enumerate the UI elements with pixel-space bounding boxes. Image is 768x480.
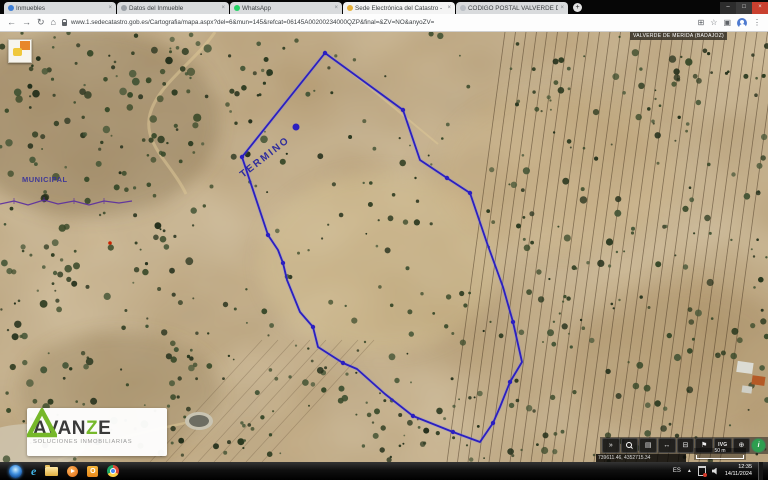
avanze-watermark: AVANZE SOLUCIONES INMOBILIARIAS [27, 408, 167, 456]
browser-navbar: ← → ↻ ⌂ www.1.sedecatastro.gob.es/Cartog… [0, 14, 768, 32]
page-gray-favicon-icon [460, 5, 466, 11]
tab-close-icon[interactable]: × [221, 5, 225, 11]
browser-tab[interactable]: Sede Electrónica del Catastro -× [343, 2, 455, 14]
tab-title: Datos del Inmueble [129, 5, 219, 12]
browser-tabbar: Inmuebles×Datos del Inmueble×WhatsApp×Se… [0, 0, 768, 14]
map-tool-zoom-icon[interactable] [621, 438, 639, 453]
browser-tab[interactable]: Datos del Inmueble× [117, 2, 229, 14]
magnifier-icon [625, 442, 633, 450]
tab-close-icon[interactable]: × [447, 5, 451, 11]
close-button[interactable]: × [752, 2, 768, 14]
tab-list: Inmuebles×Datos del Inmueble×WhatsApp×Se… [0, 0, 569, 14]
whatsapp-green-favicon-icon [234, 5, 240, 11]
navbar-actions: ⊞ ☆ ▣ ⋮ [698, 18, 761, 28]
window-controls: – □ × [720, 2, 768, 14]
layers-widget-yellow [13, 48, 22, 56]
forward-icon[interactable]: → [22, 18, 31, 27]
clock-time: 12:35 [725, 464, 752, 471]
action-center-icon[interactable] [698, 466, 706, 476]
tab-title: WhatsApp [242, 5, 332, 12]
clock-date: 14/11/2024 [725, 471, 752, 478]
coordinates-readout: 739611.46, 4352715.34 [596, 454, 686, 462]
map-tool-info-icon[interactable]: i [751, 438, 766, 453]
clock[interactable]: 12:35 14/11/2024 [725, 464, 752, 478]
avanze-triangle-logo [27, 408, 57, 438]
speaker-icon[interactable] [712, 468, 719, 475]
tab-title: Sede Electrónica del Catastro - [355, 5, 445, 12]
info-label: i [758, 442, 760, 449]
tray-expand-icon[interactable]: ▲ [687, 468, 692, 474]
map-tool-chevron-icon[interactable]: » [602, 438, 620, 453]
chrome-icon[interactable] [107, 465, 119, 477]
home-icon[interactable]: ⌂ [51, 18, 56, 27]
start-button[interactable] [9, 465, 22, 478]
tab-title: Inmuebles [16, 5, 106, 12]
tab-title: CODIGO POSTAL VALVERDE DE [468, 5, 558, 12]
map-tool-layers-icon[interactable]: ▤ [639, 438, 657, 453]
map-tool-measure-icon[interactable]: ↔ [658, 438, 676, 453]
show-desktop-button[interactable] [758, 462, 763, 480]
pond [185, 412, 213, 430]
url-bar[interactable]: www.1.sedecatastro.gob.es/Cartografia/ma… [62, 19, 692, 26]
document-gray-favicon-icon [121, 5, 127, 11]
reload-icon[interactable]: ↻ [37, 18, 45, 27]
url-text: www.1.sedecatastro.gob.es/Cartografia/ma… [71, 19, 434, 26]
minimize-button[interactable]: – [720, 2, 736, 14]
back-icon[interactable]: ← [7, 18, 16, 27]
screen: Inmuebles×Datos del Inmueble×WhatsApp×Se… [0, 0, 768, 480]
tab-close-icon[interactable]: × [334, 5, 338, 11]
tab-close-icon[interactable]: × [560, 5, 564, 11]
taskbar: ES ▲ 12:35 14/11/2024 [0, 462, 768, 480]
browser-tab[interactable]: Inmuebles× [4, 2, 116, 14]
scale-bar: 50 m [694, 448, 746, 460]
file-explorer-icon[interactable] [45, 467, 58, 476]
menu-kebab-icon[interactable]: ⋮ [753, 19, 761, 27]
system-tray: ES ▲ 12:35 14/11/2024 [673, 462, 768, 480]
map-tool-print-icon[interactable]: ⊟ [677, 438, 695, 453]
tab-close-icon[interactable]: × [108, 5, 112, 11]
aerial-imagery: TERMINO MUNICIPAL [0, 32, 768, 462]
red-marker [108, 241, 112, 245]
municipal-label: MUNICIPAL [22, 175, 68, 184]
catastro-yellow-favicon-icon [347, 5, 353, 11]
install-icon[interactable]: ⊞ [698, 19, 705, 27]
profile-avatar[interactable] [737, 18, 747, 28]
avanze-tagline: SOLUCIONES INMOBILIARIAS [33, 440, 132, 446]
browser-tab[interactable]: WhatsApp× [230, 2, 342, 14]
outlook-icon[interactable] [87, 466, 98, 477]
media-player-icon[interactable] [67, 466, 78, 477]
language-indicator[interactable]: ES [673, 468, 681, 474]
scale-label: 50 m [714, 448, 725, 454]
bookmark-star-icon[interactable]: ☆ [710, 19, 717, 27]
map-layers-widget[interactable] [8, 39, 32, 63]
browser-tab[interactable]: CODIGO POSTAL VALVERDE DE× [456, 2, 568, 14]
region-label: VALVERDE DE MERIDA (BADAJOZ) [630, 32, 727, 40]
padlock-icon [62, 22, 67, 26]
tab-search-icon[interactable]: ▣ [723, 19, 731, 27]
globe-blue-favicon-icon [8, 5, 14, 11]
scale-line [696, 458, 744, 459]
internet-explorer-icon[interactable] [31, 465, 36, 477]
map-viewport[interactable]: TERMINO MUNICIPAL VALVERDE DE MERIDA (BA… [0, 32, 768, 462]
new-tab-button[interactable]: + [573, 3, 582, 12]
maximize-button[interactable]: □ [736, 2, 752, 14]
